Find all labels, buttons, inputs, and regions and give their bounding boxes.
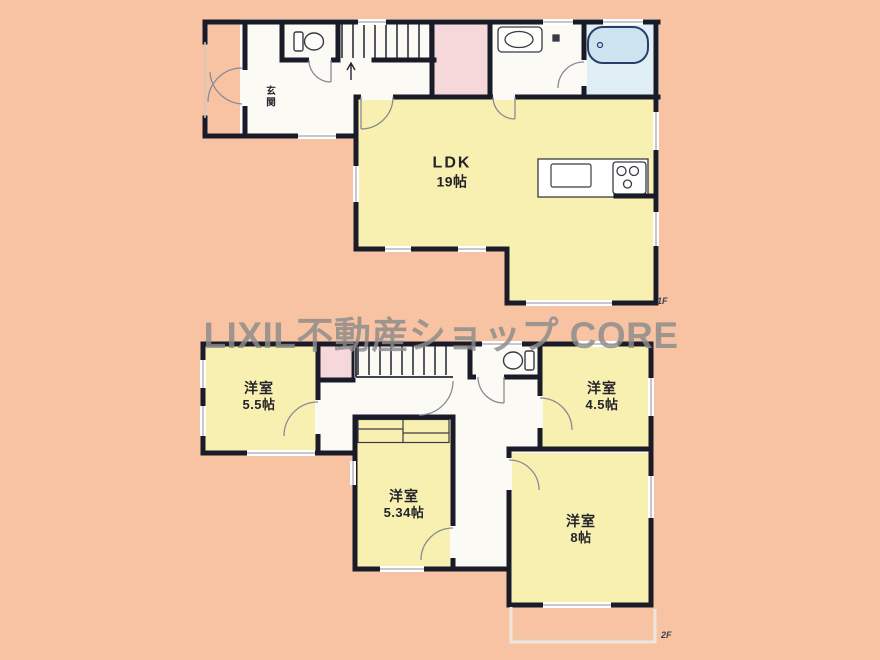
room-5-5-size: 5.5帖 — [242, 397, 275, 412]
toilet-icon — [294, 32, 324, 51]
entrance-label: 玄関 — [262, 86, 276, 109]
ldk-size: 19帖 — [433, 173, 472, 190]
room-pink-1f — [434, 24, 488, 95]
room-4-5-label: 洋室 4.5帖 — [585, 380, 618, 412]
room-5-34-label: 洋室 5.34帖 — [384, 488, 425, 520]
room-8-name: 洋室 — [566, 513, 596, 530]
floorplan-image: 玄関 LDK 19帖 1F 洋室 5.5帖 洋室 4.5帖 洋室 5.34帖 洋… — [0, 0, 880, 660]
toilet-icon-2f — [504, 351, 535, 370]
closet-pink-2f — [320, 346, 351, 378]
room-5-5-label: 洋室 5.5帖 — [242, 380, 275, 412]
room-4-5-name: 洋室 — [585, 380, 618, 397]
room-4-5-size: 4.5帖 — [585, 397, 618, 412]
room-5-34-name: 洋室 — [384, 488, 425, 505]
room-5-34-size: 5.34帖 — [384, 505, 425, 520]
bathtub-icon — [588, 27, 648, 63]
ldk-label: LDK 19帖 — [433, 154, 472, 189]
room-5-5-name: 洋室 — [242, 380, 275, 397]
floor-2-tag: 2F — [661, 630, 672, 640]
ldk-name: LDK — [433, 154, 472, 173]
balcony — [511, 607, 655, 642]
floorplan-canvas — [0, 0, 880, 660]
room-8-size: 8帖 — [566, 530, 596, 545]
kitchen-counter-icon — [538, 159, 648, 197]
room-8-label: 洋室 8帖 — [566, 513, 596, 545]
floor-1-tag: 1F — [657, 296, 668, 306]
